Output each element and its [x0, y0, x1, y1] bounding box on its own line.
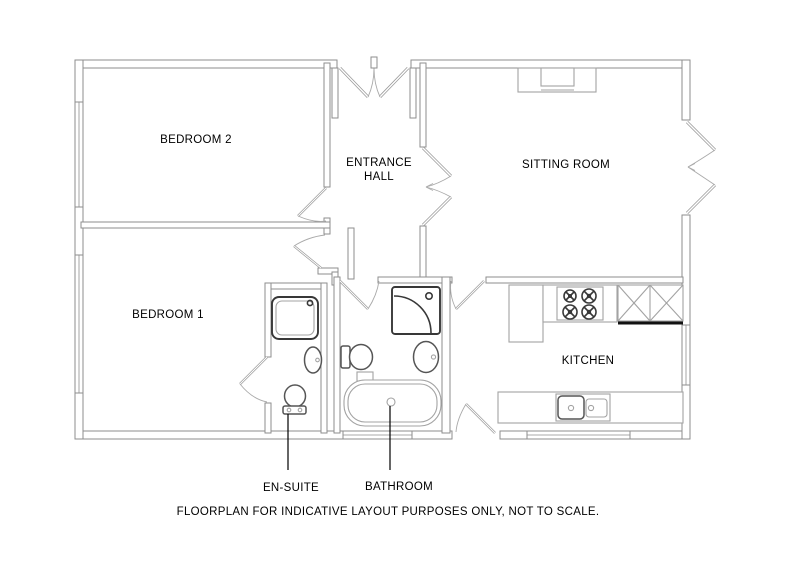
bedroom2-door — [298, 188, 326, 221]
window-bedroom2 — [75, 102, 83, 207]
ensuite-shower — [272, 297, 318, 339]
window-bedroom1 — [75, 255, 83, 393]
sitting-room-label: SITTING ROOM — [522, 159, 610, 171]
disclaimer-caption: FLOORPLAN FOR INDICATIVE LAYOUT PURPOSES… — [177, 506, 600, 518]
bedroom1-door — [294, 235, 325, 268]
fireplace — [518, 68, 596, 92]
french-doors — [687, 122, 715, 213]
window-kitchen-right — [682, 325, 690, 385]
ensuite-basin — [305, 347, 322, 373]
ensuite-label: EN-SUITE — [263, 482, 319, 494]
bathroom-label: BATHROOM — [365, 481, 433, 493]
ensuite-door — [240, 357, 267, 402]
front-door — [340, 57, 408, 97]
kitchen-door — [451, 281, 484, 309]
bathroom-shower — [392, 287, 440, 334]
bathroom-toilet — [341, 345, 373, 370]
kitchen-cupboards — [618, 285, 683, 323]
sitting-room-double-doors — [423, 148, 451, 225]
entrance-hall-label-line1: ENTRANCE — [346, 157, 412, 169]
bedroom2-label: BEDROOM 2 — [160, 134, 232, 146]
window-kitchen-bottom — [527, 431, 630, 439]
interior-walls — [81, 63, 683, 433]
kitchen-sink — [556, 394, 610, 421]
bathroom-door — [340, 281, 379, 309]
bathroom-basin — [414, 342, 439, 373]
kitchen-label: KITCHEN — [562, 355, 615, 367]
bedroom1-label: BEDROOM 1 — [132, 309, 204, 321]
bathroom-bath — [344, 380, 441, 426]
back-door — [456, 404, 495, 433]
window-bathroom — [343, 431, 412, 439]
ensuite-toilet — [283, 385, 306, 414]
entrance-hall-label-line2: HALL — [364, 171, 394, 183]
floorplan: BEDROOM 2 ENTRANCE HALL SITTING ROOM BED… — [0, 0, 802, 571]
